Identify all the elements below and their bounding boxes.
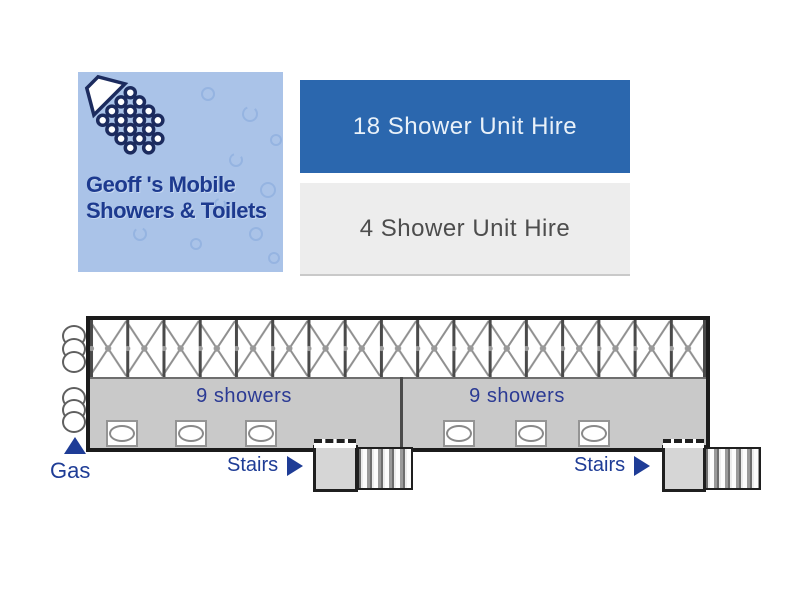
stairs-label-text: Stairs <box>574 454 625 477</box>
basin <box>175 420 207 447</box>
page: Geoff 's Mobile Showers & Toilets 18 Sho… <box>0 0 800 600</box>
stairs-steps-left <box>357 447 413 490</box>
basin <box>578 420 610 447</box>
section-label-right: 9 showers <box>469 385 565 408</box>
basin <box>515 420 547 447</box>
gas-bottle-icon <box>62 351 86 373</box>
gas-arrow-icon <box>64 437 86 454</box>
basin <box>245 420 277 447</box>
stairs-platform-right <box>662 445 706 492</box>
basin-oval <box>248 425 274 442</box>
basin-oval <box>178 425 204 442</box>
stairs-label-right: Stairs <box>574 454 650 477</box>
basin-oval <box>446 425 472 442</box>
tab-4-shower-unit-hire[interactable]: 4 Shower Unit Hire <box>300 183 630 276</box>
section-label-left: 9 showers <box>196 385 292 408</box>
stairs-platform-left <box>313 445 358 492</box>
basin-oval <box>581 425 607 442</box>
stairs-label-left: Stairs <box>227 454 303 477</box>
door-dash-right <box>663 439 704 448</box>
brand-title-line1: Geoff 's Mobile <box>86 172 267 198</box>
tab-18-shower-unit-hire[interactable]: 18 Shower Unit Hire <box>300 80 630 173</box>
basin <box>106 420 138 447</box>
brand-title-line2: Showers & Toilets <box>86 198 267 224</box>
stairs-steps-right <box>704 447 761 490</box>
stairs-label-text: Stairs <box>227 454 278 477</box>
stairs-arrow-icon <box>287 456 303 476</box>
door-dash-left <box>314 439 356 448</box>
section-divider <box>400 377 403 448</box>
gas-label: Gas <box>50 458 90 484</box>
brand-title: Geoff 's Mobile Showers & Toilets <box>86 172 267 224</box>
brand-logo[interactable]: Geoff 's Mobile Showers & Toilets <box>78 72 283 272</box>
gas-bottle-icon <box>62 411 86 433</box>
trailer-unit: 9 showers 9 showers <box>86 316 710 452</box>
truss-pattern <box>90 320 706 377</box>
basin-oval <box>109 425 135 442</box>
stairs-arrow-icon <box>634 456 650 476</box>
basin-oval <box>518 425 544 442</box>
basin <box>443 420 475 447</box>
